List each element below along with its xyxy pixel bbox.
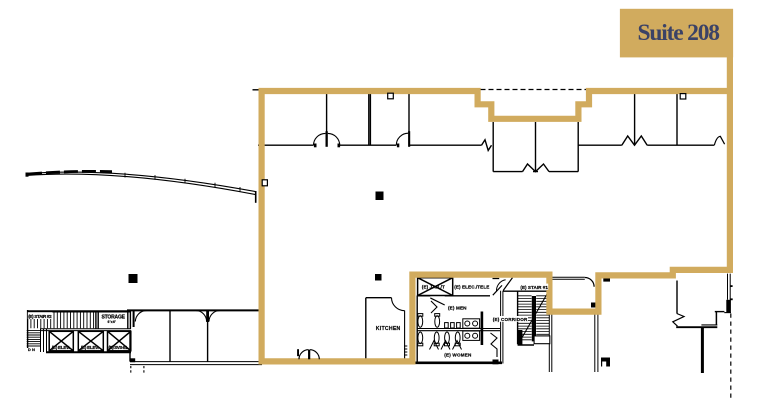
svg-text:DN: DN [28, 347, 35, 352]
svg-text:(E) MEN: (E) MEN [448, 306, 467, 311]
svg-text:Suite 208: Suite 208 [638, 20, 721, 46]
svg-text:(E) CORRIDOR: (E) CORRIDOR [493, 317, 528, 322]
svg-text:6'x6': 6'x6' [108, 320, 117, 324]
svg-text:(E) ELEC./TELE: (E) ELEC./TELE [454, 284, 489, 289]
svg-text:KITCHEN: KITCHEN [376, 326, 401, 332]
svg-text:(E) ELEV.: (E) ELEV. [81, 345, 99, 350]
svg-text:(E) WOMEN: (E) WOMEN [444, 352, 472, 357]
svg-text:(E) ELEV.: (E) ELEV. [52, 345, 70, 350]
svg-text:(E) STAIR #1: (E) STAIR #1 [520, 285, 548, 290]
svg-text:(E) SVS-EL: (E) SVS-EL [109, 345, 129, 350]
svg-text:(E) JAN./T: (E) JAN./T [422, 284, 445, 289]
svg-text:(E) STAIR #2: (E) STAIR #2 [28, 314, 52, 319]
